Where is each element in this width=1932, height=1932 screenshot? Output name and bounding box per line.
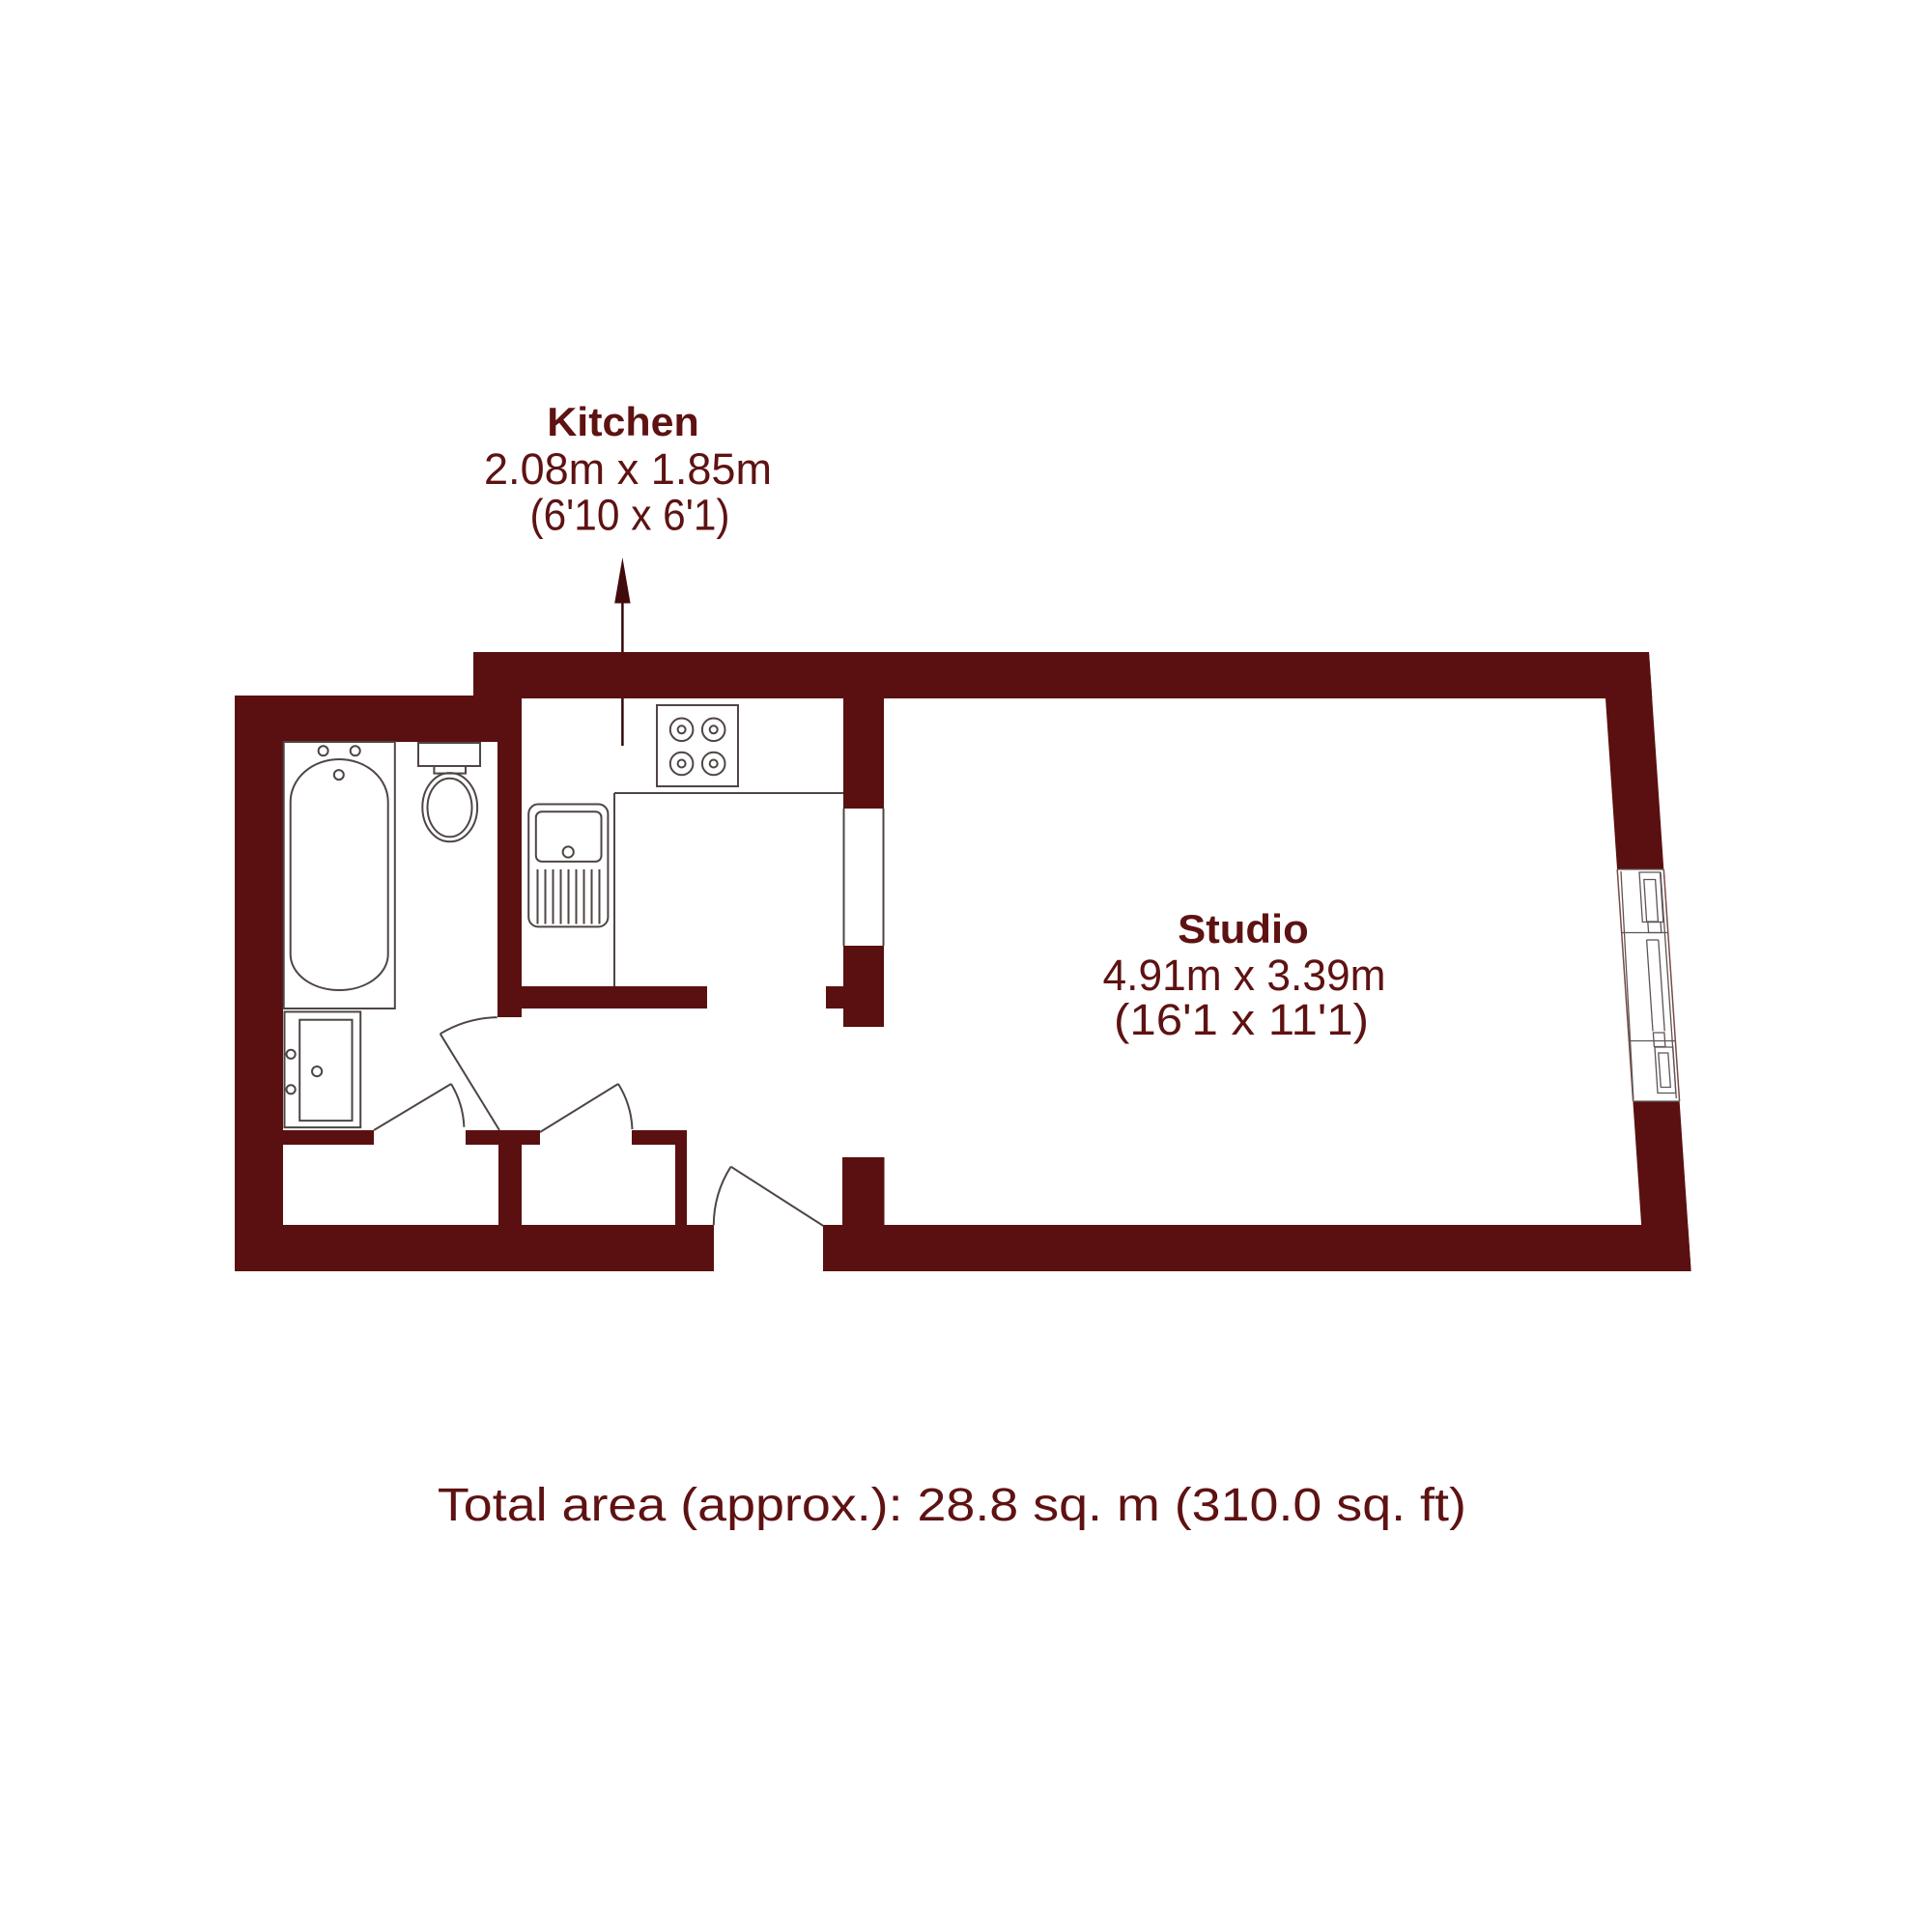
svg-text:Kitchen: Kitchen <box>547 399 699 444</box>
svg-text:2.08m x 1.85m: 2.08m x 1.85m <box>484 444 772 494</box>
svg-text:(6'10 x 6'1): (6'10 x 6'1) <box>530 491 730 540</box>
svg-text:Studio: Studio <box>1178 906 1309 952</box>
svg-text:Total area (approx.): 28.8 sq.: Total area (approx.): 28.8 sq. m (310.0 … <box>438 1480 1466 1531</box>
svg-text:(16'1 x 11'1): (16'1 x 11'1) <box>1114 995 1369 1044</box>
svg-text:4.91m x 3.39m: 4.91m x 3.39m <box>1103 951 1386 1000</box>
